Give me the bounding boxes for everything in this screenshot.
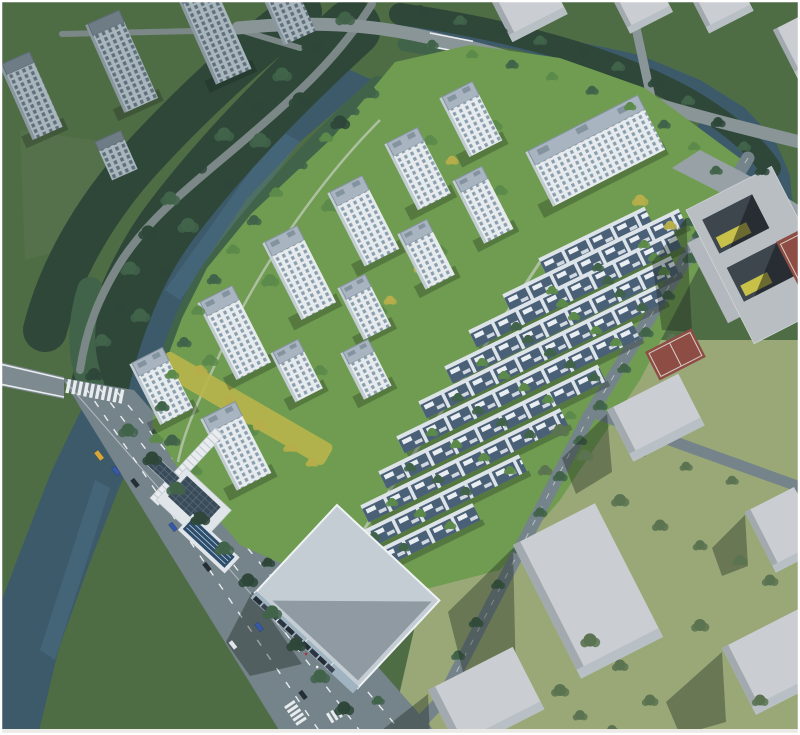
rendering-canvas [0,0,800,735]
aerial-rendering [0,0,800,735]
